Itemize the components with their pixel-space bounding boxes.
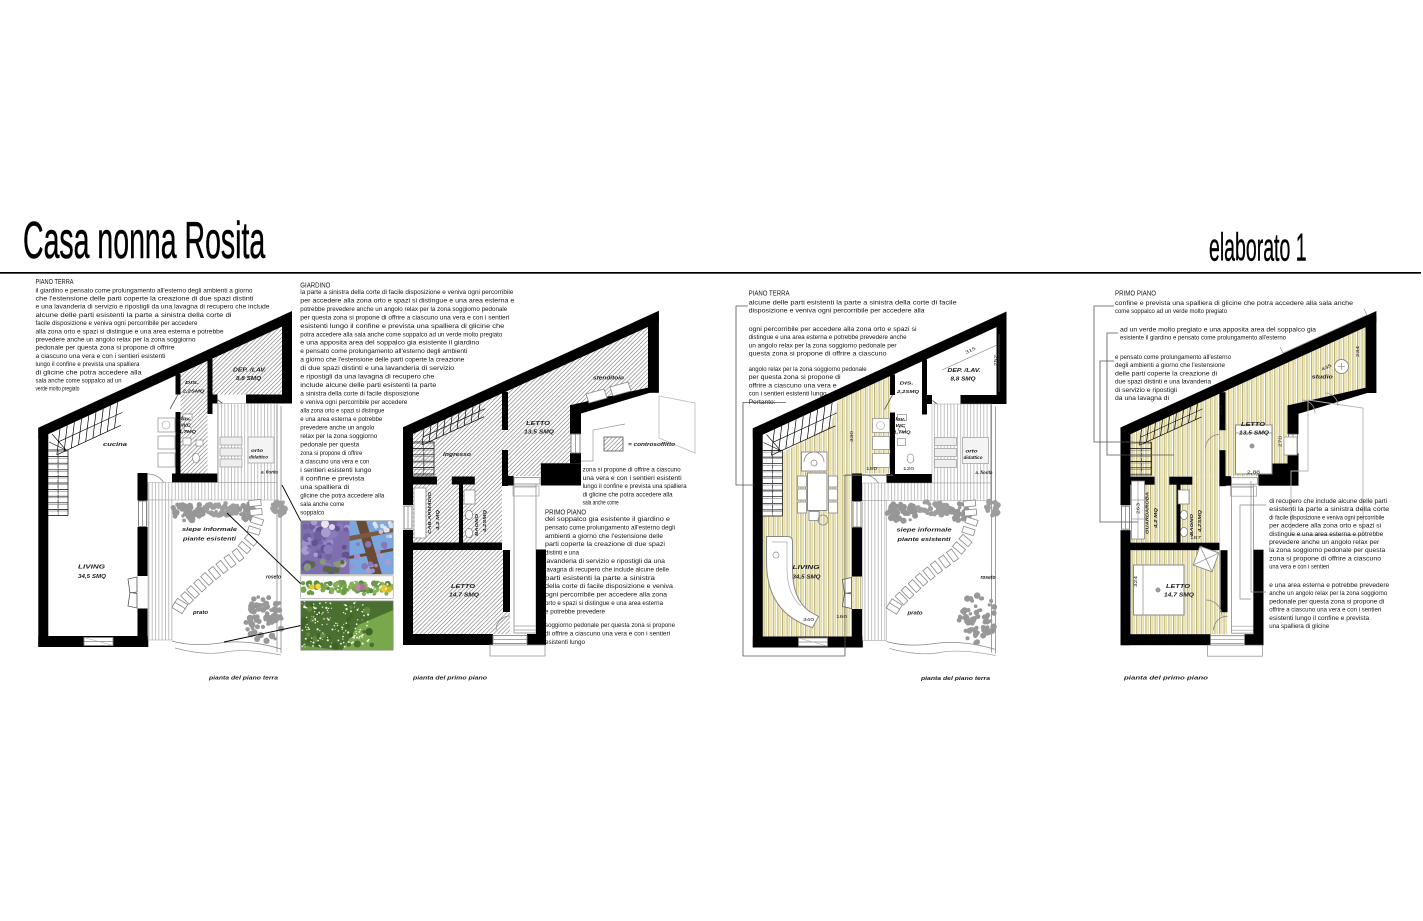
svg-text:pensato come prolungamento all: pensato come prolungamento all'esterno d… bbox=[545, 524, 676, 531]
svg-text:soppalco: soppalco bbox=[300, 510, 324, 517]
svg-text:alcune delle parti esistenti l: alcune delle parti esistenti la parte a … bbox=[749, 300, 957, 307]
svg-text:il confine e prevista: il confine e prevista bbox=[300, 476, 364, 483]
svg-text:LETTO: LETTO bbox=[1241, 422, 1266, 428]
svg-text:34,5 SMQ: 34,5 SMQ bbox=[78, 574, 107, 580]
svg-text:potrebbe prevedere anche un an: potrebbe prevedere anche un angolo relax… bbox=[300, 306, 507, 313]
svg-text:lungo il confine e prevista un: lungo il confine e prevista una spallier… bbox=[36, 361, 140, 368]
svg-text:siepe informale: siepe informale bbox=[897, 528, 952, 534]
svg-text:4,2SMQ: 4,2SMQ bbox=[482, 510, 488, 534]
svg-text:2,2SMQ: 2,2SMQ bbox=[896, 389, 920, 395]
svg-text:e veniva ogni percorribile per: e veniva ogni percorribile per accedere bbox=[300, 399, 407, 406]
svg-text:per accedere alla zona orto e: per accedere alla zona orto e spazi si d… bbox=[300, 297, 514, 304]
svg-text:delle parti coperte la creazio: delle parti coperte la creazione di bbox=[1115, 370, 1218, 377]
svg-text:8,8 SMQ: 8,8 SMQ bbox=[236, 376, 261, 382]
svg-text:roseto: roseto bbox=[981, 575, 996, 581]
svg-text:soggiorno pedonale per questa: soggiorno pedonale per questa zona si pr… bbox=[545, 622, 675, 629]
svg-text:a ciascuno una vera e con: a ciascuno una vera e con bbox=[300, 459, 369, 466]
svg-text:i sentieri esistenti lungo: i sentieri esistenti lungo bbox=[300, 467, 371, 474]
svg-text:distinti e una: distinti e una bbox=[545, 550, 579, 557]
svg-text:didattico: didattico bbox=[249, 455, 268, 460]
svg-text:di glicine che potra accedere: di glicine che potra accedere alla bbox=[36, 369, 142, 376]
svg-text:di offrire a ciascuno una vera: di offrire a ciascuno una vera e con i s… bbox=[545, 630, 671, 637]
svg-text:= controsoffitto: = controsoffitto bbox=[628, 442, 676, 448]
svg-text:8,8 SMQ: 8,8 SMQ bbox=[951, 377, 976, 383]
svg-text:roseto: roseto bbox=[266, 575, 281, 581]
svg-text:234: 234 bbox=[1355, 345, 1360, 357]
svg-text:330: 330 bbox=[849, 430, 854, 442]
svg-text:34,5 SMQ: 34,5 SMQ bbox=[793, 575, 822, 581]
svg-text:GUARDAROBA: GUARDAROBA bbox=[1145, 491, 1151, 534]
svg-text:esistenti la parte a sinistra: esistenti la parte a sinistra della cort… bbox=[1269, 506, 1389, 513]
svg-text:un angolo relax per la zona so: un angolo relax per la zona soggiorno pe… bbox=[749, 342, 898, 349]
svg-text:del soppalco gia esistente il: del soppalco gia esistente il giardino e bbox=[545, 516, 670, 523]
svg-text:e ripostigli da una lavagna di: e ripostigli da una lavagna di recupero … bbox=[300, 374, 434, 381]
svg-text:14,7 SMQ: 14,7 SMQ bbox=[449, 593, 480, 599]
svg-text:e pensato come prolungamento a: e pensato come prolungamento all'esterno… bbox=[300, 348, 468, 355]
svg-text:2,88: 2,88 bbox=[1247, 470, 1261, 475]
svg-text:pianta del piano terra: pianta del piano terra bbox=[920, 676, 991, 682]
svg-text:ogni percorribile per accedere: ogni percorribile per accedere alla zona bbox=[545, 592, 667, 599]
svg-text:stenditoio: stenditoio bbox=[593, 376, 624, 382]
svg-text:252: 252 bbox=[993, 354, 998, 366]
svg-text:a giorno che l'estensione dell: a giorno che l'estensione delle parti co… bbox=[300, 357, 464, 364]
svg-text:e potrebbe prevedere: e potrebbe prevedere bbox=[545, 608, 605, 615]
svg-text:DIS.: DIS. bbox=[185, 380, 199, 386]
svg-text:una spalliera di: una spalliera di bbox=[300, 484, 350, 491]
svg-text:a ciascuno una vera e con i se: a ciascuno una vera e con i sentieri esi… bbox=[36, 353, 167, 360]
svg-text:4,2 MQ: 4,2 MQ bbox=[1153, 508, 1159, 530]
svg-text:questa zona si propone di offr: questa zona si propone di offrire a cias… bbox=[749, 351, 887, 358]
svg-text:ingresso: ingresso bbox=[443, 452, 471, 458]
svg-text:degli ambienti a giorno che l': degli ambienti a giorno che l'estensione bbox=[1115, 362, 1225, 369]
svg-text:pedonale per questa zona si pr: pedonale per questa zona si propone di bbox=[1269, 598, 1385, 605]
svg-text:la parte a sinistra della cort: la parte a sinistra della corte di facil… bbox=[300, 289, 513, 296]
svg-text:LIVING: LIVING bbox=[793, 565, 821, 571]
svg-text:parti coperte la creazione di: parti coperte la creazione di due spazi bbox=[545, 541, 666, 548]
svg-text:lavanderia di servizio e ripos: lavanderia di servizio e ripostigli da u… bbox=[545, 558, 665, 565]
svg-text:alcune delle parti esistenti l: alcune delle parti esistenti la parte a … bbox=[36, 312, 233, 319]
svg-text:relax per la zona soggiorno: relax per la zona soggiorno bbox=[300, 433, 377, 440]
svg-text:potra accedere alla sala anche: potra accedere alla sala anche come sopp… bbox=[300, 331, 502, 338]
svg-text:BAGNO: BAGNO bbox=[1189, 514, 1195, 536]
svg-text:LIVING: LIVING bbox=[78, 565, 106, 571]
svg-text:con i sentieri esistenti lungo: con i sentieri esistenti lungo bbox=[749, 391, 827, 398]
svg-text:263: 263 bbox=[1136, 502, 1141, 514]
svg-text:esistenti lungo il confine e p: esistenti lungo il confine e prevista un… bbox=[300, 323, 504, 330]
svg-text:prato: prato bbox=[906, 611, 922, 617]
svg-text:pedonale per questa zona si pr: pedonale per questa zona si propone di o… bbox=[36, 345, 175, 352]
svg-text:CAB.ARMADIO: CAB.ARMADIO bbox=[427, 492, 433, 534]
svg-text:di facile disposizione e veniv: di facile disposizione e veniva ogni per… bbox=[1269, 514, 1384, 521]
svg-text:ogni percorribile per accedere: ogni percorribile per accedere alla zona… bbox=[749, 326, 918, 333]
svg-text:a sinistra della corte di faci: a sinistra della corte di facile disposi… bbox=[300, 391, 419, 398]
svg-text:lav.: lav. bbox=[896, 417, 906, 422]
svg-text:una spalliera di glicine: una spalliera di glicine bbox=[1269, 623, 1329, 630]
svg-text:orto e spazi si distingue e un: orto e spazi si distingue e una area est… bbox=[545, 600, 663, 607]
svg-text:prevedere anche un angolo: prevedere anche un angolo bbox=[300, 425, 374, 432]
svg-text:esistenti lungo: esistenti lungo bbox=[545, 639, 585, 646]
svg-text:prevedere anche un angolo rela: prevedere anche un angolo relax per la z… bbox=[36, 337, 196, 344]
svg-text:siepe informale: siepe informale bbox=[182, 527, 237, 533]
svg-text:sala anche come soppalco ad un: sala anche come soppalco ad un bbox=[36, 378, 122, 385]
svg-text:due spazi distinti e una lavan: due spazi distinti e una lavanderia bbox=[1115, 379, 1211, 386]
svg-text:anche un angolo relax per la z: anche un angolo relax per la zona soggio… bbox=[1269, 590, 1387, 597]
svg-text:13,5 SMQ: 13,5 SMQ bbox=[524, 430, 555, 436]
svg-text:340: 340 bbox=[803, 617, 815, 622]
svg-text:LETTO: LETTO bbox=[451, 584, 476, 590]
svg-text:WC: WC bbox=[181, 423, 192, 428]
svg-text:lav.: lav. bbox=[181, 416, 191, 421]
svg-text:cucina: cucina bbox=[103, 442, 127, 448]
svg-text:zona si propone di offrire a c: zona si propone di offrire a ciascuno bbox=[1269, 555, 1381, 562]
svg-text:orto: orto bbox=[251, 448, 264, 453]
svg-text:BAGNO: BAGNO bbox=[474, 514, 480, 536]
svg-text:1,7MQ: 1,7MQ bbox=[179, 429, 197, 434]
svg-text:piante esistenti: piante esistenti bbox=[182, 537, 237, 543]
svg-text:di due spazi distinti e una la: di due spazi distinti e una lavanderia d… bbox=[300, 365, 454, 372]
svg-text:324: 324 bbox=[1133, 575, 1138, 587]
svg-text:270: 270 bbox=[1278, 435, 1283, 447]
svg-text:una vera e con i sentieri: una vera e con i sentieri bbox=[1269, 564, 1329, 571]
svg-text:offrire a ciascuno una vera e: offrire a ciascuno una vera e bbox=[749, 382, 837, 389]
svg-text:187: 187 bbox=[1190, 535, 1202, 540]
svg-text:alla zona orto e spazi si dist: alla zona orto e spazi si distingue e un… bbox=[36, 328, 224, 335]
svg-text:alla zona orto e spazi si dist: alla zona orto e spazi si distingue bbox=[300, 408, 384, 415]
svg-text:una vera e con i sentieri esis: una vera e con i sentieri esistenti bbox=[583, 475, 682, 482]
svg-text:DEP. /LAV.: DEP. /LAV. bbox=[948, 368, 981, 374]
svg-text:4,2 MQ: 4,2 MQ bbox=[435, 510, 441, 532]
svg-text:studio: studio bbox=[1312, 375, 1333, 381]
svg-text:304: 304 bbox=[1219, 404, 1224, 416]
svg-text:piante esistenti: piante esistenti bbox=[896, 537, 951, 543]
svg-text:da una lavagna di: da una lavagna di bbox=[1115, 395, 1170, 402]
svg-text:pianta del primo piano: pianta del primo piano bbox=[412, 676, 488, 682]
svg-text:4,2SMQ: 4,2SMQ bbox=[1197, 510, 1203, 534]
svg-text:elaborato 1: elaborato 1 bbox=[1209, 225, 1307, 269]
svg-text:distingue e una area esterna e: distingue e una area esterna e potrebbe … bbox=[749, 334, 907, 341]
svg-text:distingue e una area esterna e: distingue e una area esterna e potrebbe bbox=[1269, 531, 1383, 538]
svg-text:e una area esterna e potrebbe: e una area esterna e potrebbe bbox=[300, 416, 382, 423]
svg-text:il giardino e pensato come pro: il giardino e pensato come prolungamento… bbox=[36, 287, 253, 294]
svg-text:a. fiorita: a. fiorita bbox=[261, 470, 279, 475]
svg-text:come soppalco ad un verde molt: come soppalco ad un verde molto pregiato bbox=[1115, 308, 1227, 315]
svg-text:13,5 SMQ: 13,5 SMQ bbox=[1239, 431, 1270, 437]
svg-text:verde molto pregiato: verde molto pregiato bbox=[36, 386, 80, 393]
svg-text:pedonale per questa: pedonale per questa bbox=[300, 442, 359, 449]
svg-text:pianta del primo piano: pianta del primo piano bbox=[1123, 676, 1209, 682]
svg-text:lavagna di recupero che includ: lavagna di recupero che include alcune d… bbox=[545, 566, 669, 573]
svg-text:parti esistenti la parte a sin: parti esistenti la parte a sinistra bbox=[545, 575, 655, 582]
svg-text:DEP. /LAV.: DEP. /LAV. bbox=[233, 368, 266, 374]
svg-text:confine e prevista una spallie: confine e prevista una spalliera di glic… bbox=[1115, 300, 1353, 307]
svg-text:14,7 SMQ: 14,7 SMQ bbox=[1164, 593, 1195, 599]
svg-text:della corte di facile disposiz: della corte di facile disposizione e ven… bbox=[545, 583, 673, 590]
svg-text:lungo il confine e prevista un: lungo il confine e prevista una spallier… bbox=[583, 483, 688, 490]
svg-text:zona si propone di offrire a c: zona si propone di offrire a ciascuno bbox=[583, 467, 682, 474]
svg-text:che l'estensione delle parti c: che l'estensione delle parti coperte la … bbox=[36, 296, 255, 303]
svg-text:2,2SMQ: 2,2SMQ bbox=[181, 389, 205, 395]
svg-text:pianta del piano terra: pianta del piano terra bbox=[208, 676, 279, 682]
svg-text:LETTO: LETTO bbox=[526, 421, 551, 427]
svg-text:150: 150 bbox=[866, 466, 878, 471]
svg-text:Casa nonna Rosita: Casa nonna Rosita bbox=[23, 211, 266, 269]
svg-text:esistenti lungo il confine e p: esistenti lungo il confine e prevista bbox=[1269, 615, 1369, 622]
svg-text:di recupero che include alcune: di recupero che include alcune delle par… bbox=[1269, 498, 1388, 505]
svg-text:sala anche come: sala anche come bbox=[300, 501, 344, 508]
svg-text:per questa zona si propone di: per questa zona si propone di offrire a … bbox=[300, 314, 510, 321]
svg-text:ad un verde molto pregiato e u: ad un verde molto pregiato e una apposit… bbox=[1120, 327, 1316, 334]
svg-text:esistente il giardino e pensat: esistente il giardino e pensato come pro… bbox=[1120, 335, 1286, 342]
svg-text:include alcune delle parti esi: include alcune delle parti esistenti la … bbox=[300, 382, 436, 389]
svg-text:facile disposizione e veniva o: facile disposizione e veniva ogni percor… bbox=[36, 320, 198, 327]
svg-text:offrire a ciascuno una vera e: offrire a ciascuno una vera e con i sent… bbox=[1269, 607, 1381, 614]
svg-text:per accedere alla zona orto e: per accedere alla zona orto e spazi si bbox=[1269, 523, 1382, 530]
svg-text:glicine che potra accedere all: glicine che potra accedere alla bbox=[300, 493, 384, 500]
svg-text:e una lavanderia di servizio e: e una lavanderia di servizio e ripostigl… bbox=[36, 304, 270, 311]
svg-text:DIS.: DIS. bbox=[900, 381, 914, 387]
svg-text:di glicine che potra accedere: di glicine che potra accedere alla bbox=[583, 491, 674, 498]
svg-text:e una area esterna e potrebbe: e una area esterna e potrebbe prevedere bbox=[1269, 582, 1389, 589]
svg-text:120: 120 bbox=[903, 466, 915, 471]
svg-text:ambienti a giorno che l'estens: ambienti a giorno che l'estensione delle bbox=[545, 533, 663, 540]
svg-text:per questa zona si propone di: per questa zona si propone di bbox=[749, 374, 842, 381]
svg-text:PRIMO PIANO: PRIMO PIANO bbox=[1115, 289, 1156, 298]
svg-text:PIANO TERRA: PIANO TERRA bbox=[749, 289, 790, 298]
svg-text:di servizio e ripostigli: di servizio e ripostigli bbox=[1115, 387, 1178, 394]
svg-text:WC: WC bbox=[896, 423, 907, 428]
svg-text:PIANO TERRA: PIANO TERRA bbox=[36, 277, 74, 286]
svg-text:e pensato come prolungamento a: e pensato come prolungamento all'esterno bbox=[1115, 354, 1231, 361]
svg-text:didattico: didattico bbox=[964, 455, 983, 460]
svg-text:e una apposita area del soppal: e una apposita area del soppalco gia esi… bbox=[300, 340, 479, 347]
svg-text:prato: prato bbox=[192, 610, 208, 616]
svg-text:prevedere anche un angolo rela: prevedere anche un angolo relax per bbox=[1269, 539, 1380, 546]
svg-text:disposizione e veniva ogni per: disposizione e veniva ogni percorribile … bbox=[749, 308, 925, 315]
svg-text:1,7MQ: 1,7MQ bbox=[894, 430, 912, 435]
svg-text:LETTO: LETTO bbox=[1166, 584, 1191, 590]
svg-text:orto: orto bbox=[966, 449, 979, 454]
svg-text:304: 304 bbox=[501, 404, 506, 416]
svg-text:zona si propone di offrire: zona si propone di offrire bbox=[300, 450, 362, 457]
svg-text:sala anche come: sala anche come bbox=[583, 500, 619, 507]
svg-text:la zona soggiorno pedonale per: la zona soggiorno pedonale per questa bbox=[1269, 547, 1385, 554]
svg-text:160: 160 bbox=[836, 614, 848, 619]
svg-text:angolo relax per la zona soggi: angolo relax per la zona soggiorno pedon… bbox=[749, 366, 867, 373]
svg-text:a. fiorita: a. fiorita bbox=[976, 470, 994, 475]
